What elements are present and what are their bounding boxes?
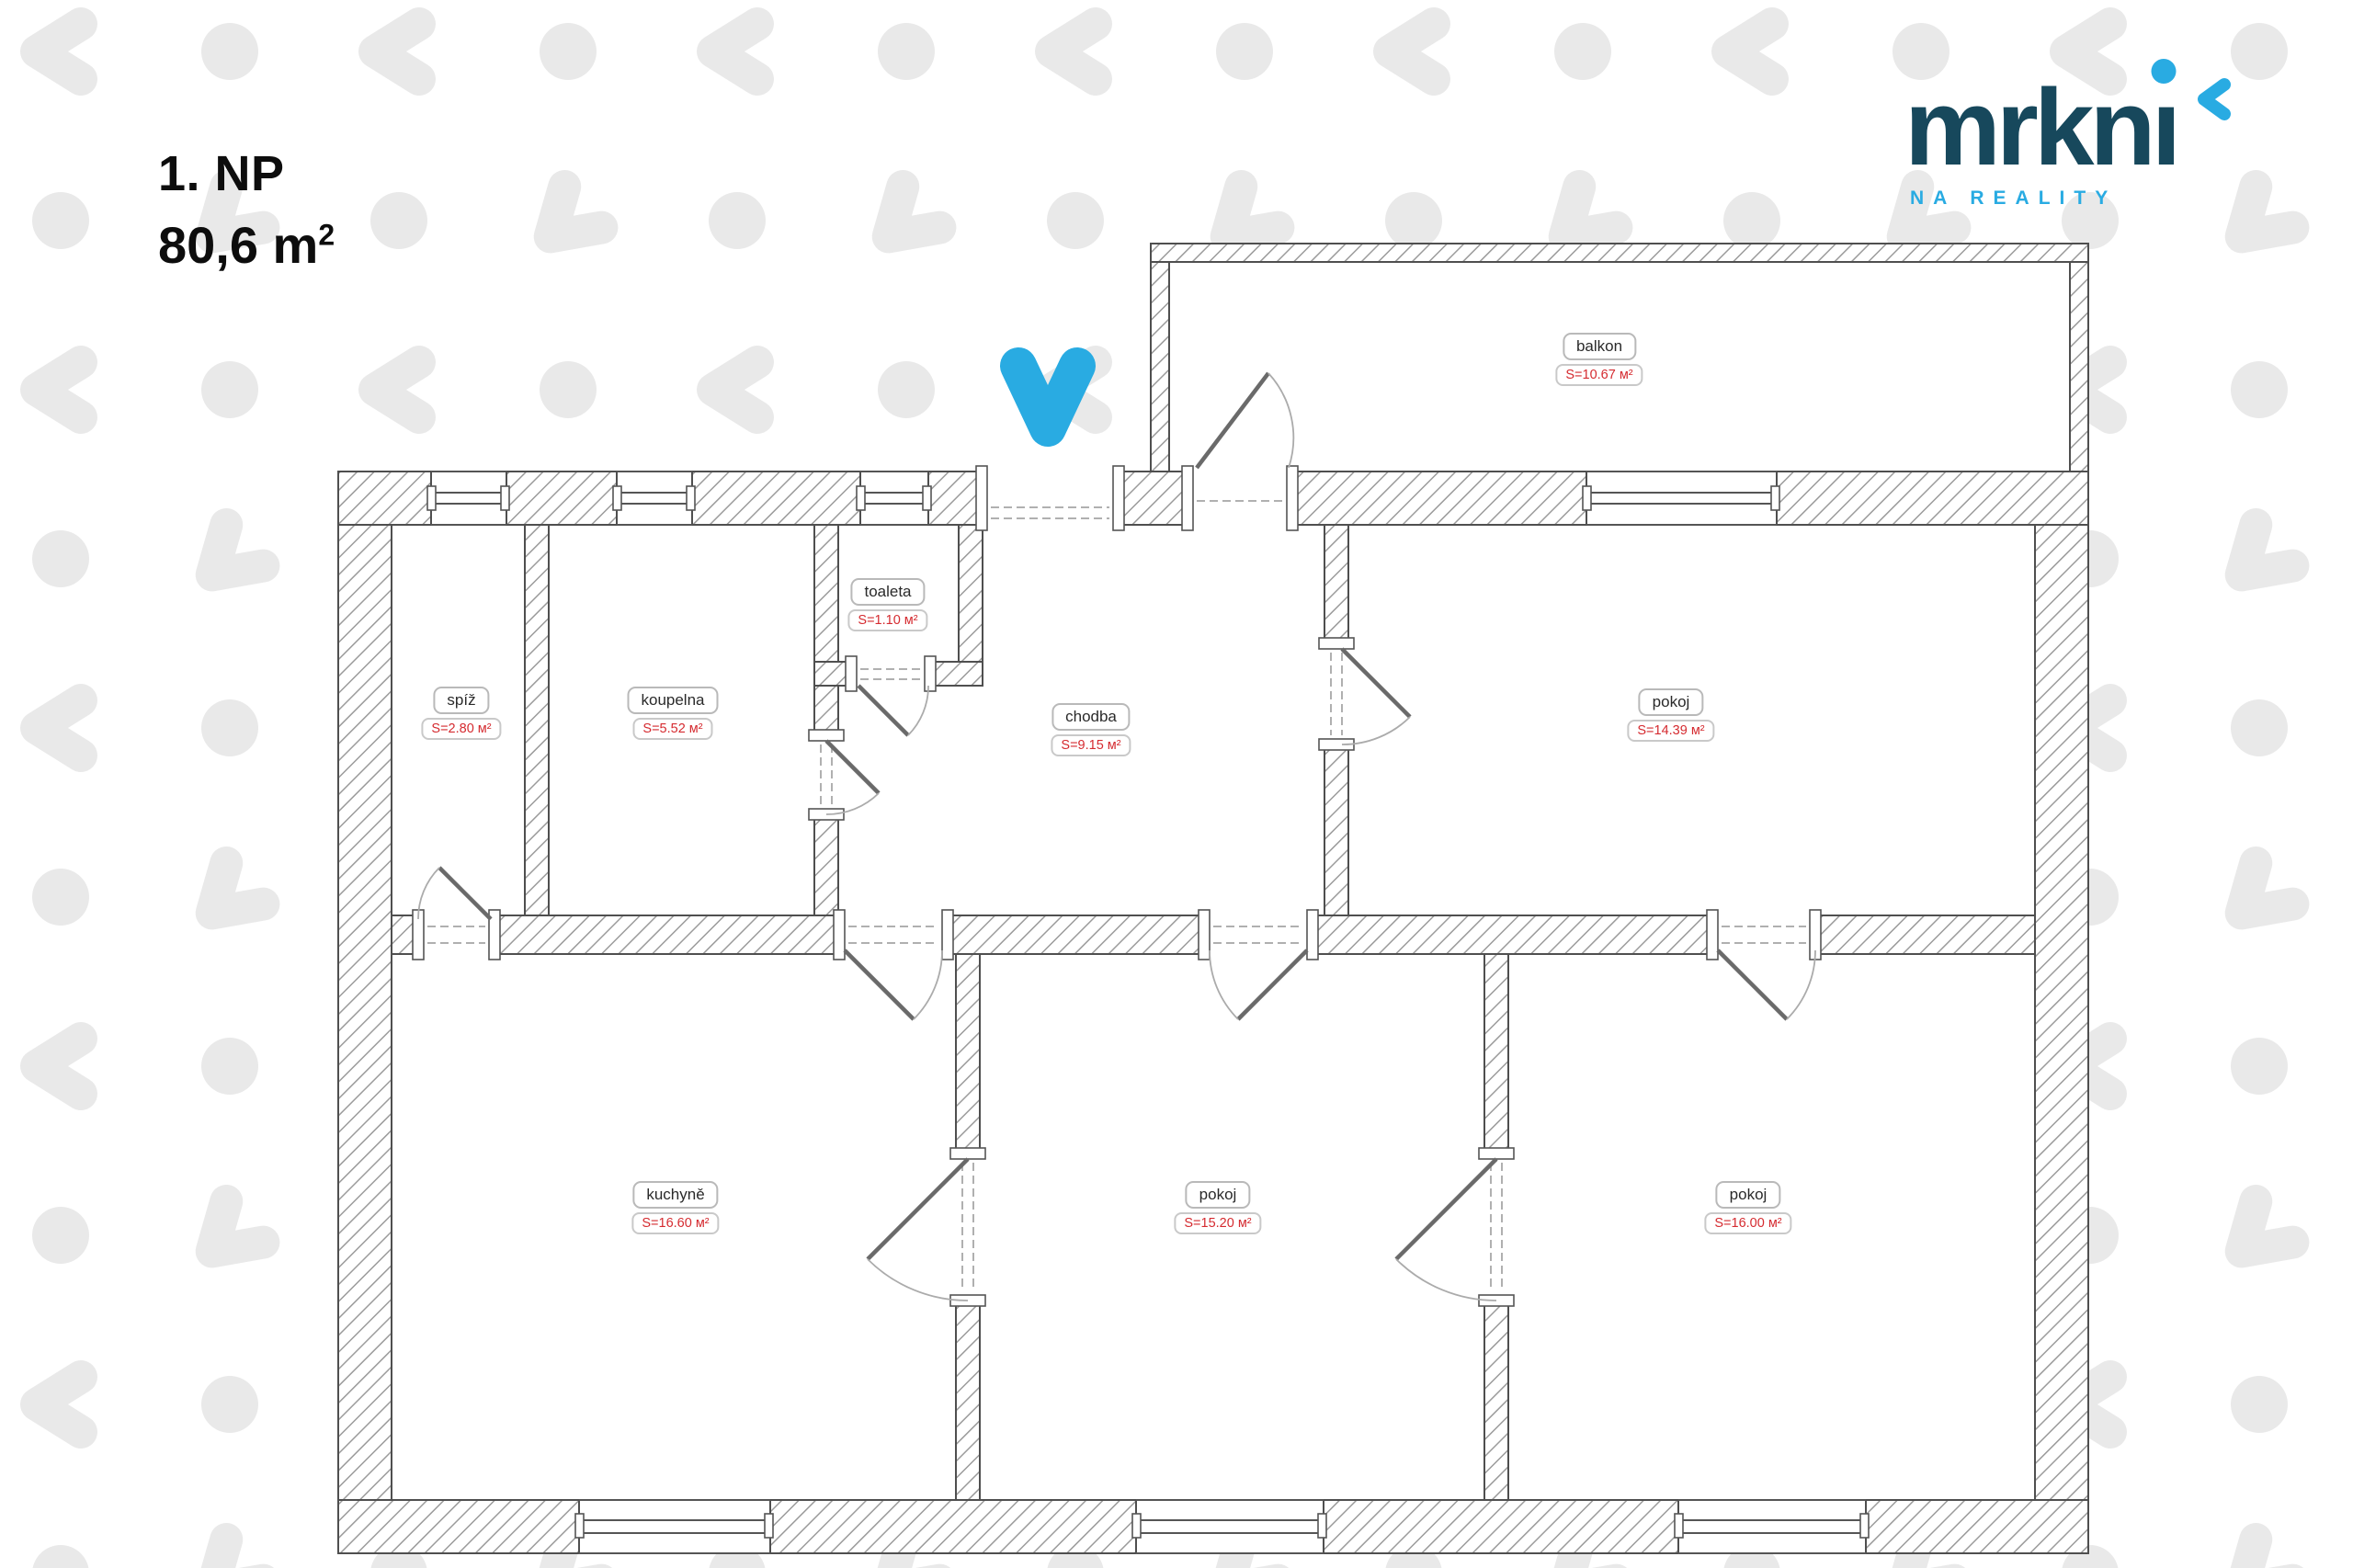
room-area: S=9.15 м²: [1051, 734, 1131, 756]
brand-chevron-icon: [2189, 75, 2237, 123]
brand-wordmark: mrknı: [1904, 74, 2290, 182]
floor-number: 1. NP: [158, 145, 335, 202]
brand-tagline: NA REALITY: [1904, 187, 2290, 210]
room-label-koupelna: koupelna S=5.52 м²: [627, 687, 718, 740]
room-name: pokoj: [1639, 688, 1704, 716]
floor-title: 1. NP 80,6 m2: [158, 145, 335, 275]
total-area: 80,6 m2: [158, 215, 335, 275]
room-name: kuchyně: [632, 1181, 718, 1209]
room-label-pokoj-pravy: pokoj S=16.00 м²: [1704, 1181, 1791, 1234]
room-name: pokoj: [1186, 1181, 1251, 1209]
room-area: S=15.20 м²: [1174, 1212, 1261, 1234]
room-name: pokoj: [1716, 1181, 1781, 1209]
room-area: S=14.39 м²: [1627, 720, 1714, 742]
floor-area-background: [338, 244, 2088, 1553]
entrance-v-marker: [1018, 366, 1077, 428]
room-area: S=10.67 м²: [1555, 364, 1643, 386]
room-label-kuchyne: kuchyně S=16.60 м²: [631, 1181, 719, 1234]
room-label-toaleta: toaleta S=1.10 м²: [847, 578, 927, 631]
brand-letter-i: ı: [2152, 74, 2177, 182]
room-label-pokoj-horni: pokoj S=14.39 м²: [1627, 688, 1714, 742]
room-label-balkon: balkon S=10.67 м²: [1555, 333, 1643, 386]
room-name: balkon: [1563, 333, 1636, 360]
total-area-sup: 2: [318, 218, 335, 251]
room-area: S=2.80 м²: [421, 718, 501, 740]
brand-i-stem: ı: [2152, 67, 2177, 188]
room-label-pokoj-stredni: pokoj S=15.20 м²: [1174, 1181, 1261, 1234]
room-area: S=16.00 м²: [1704, 1212, 1791, 1234]
brand-i-dot: [2152, 59, 2177, 84]
brand-logo: mrknı NA REALITY: [1904, 74, 2290, 210]
room-name: spíž: [433, 687, 489, 714]
room-area: S=1.10 м²: [847, 609, 927, 631]
room-area: S=16.60 м²: [631, 1212, 719, 1234]
total-area-value: 80,6 m: [158, 216, 318, 274]
room-name: koupelna: [627, 687, 718, 714]
room-name: toaleta: [850, 578, 925, 606]
room-area: S=5.52 м²: [632, 718, 712, 740]
room-label-chodba: chodba S=9.15 м²: [1051, 703, 1131, 756]
floor-plan: [0, 0, 2353, 1568]
brand-text: mrkn: [1904, 74, 2152, 182]
room-label-spiz: spíž S=2.80 м²: [421, 687, 501, 740]
room-name: chodba: [1051, 703, 1131, 731]
